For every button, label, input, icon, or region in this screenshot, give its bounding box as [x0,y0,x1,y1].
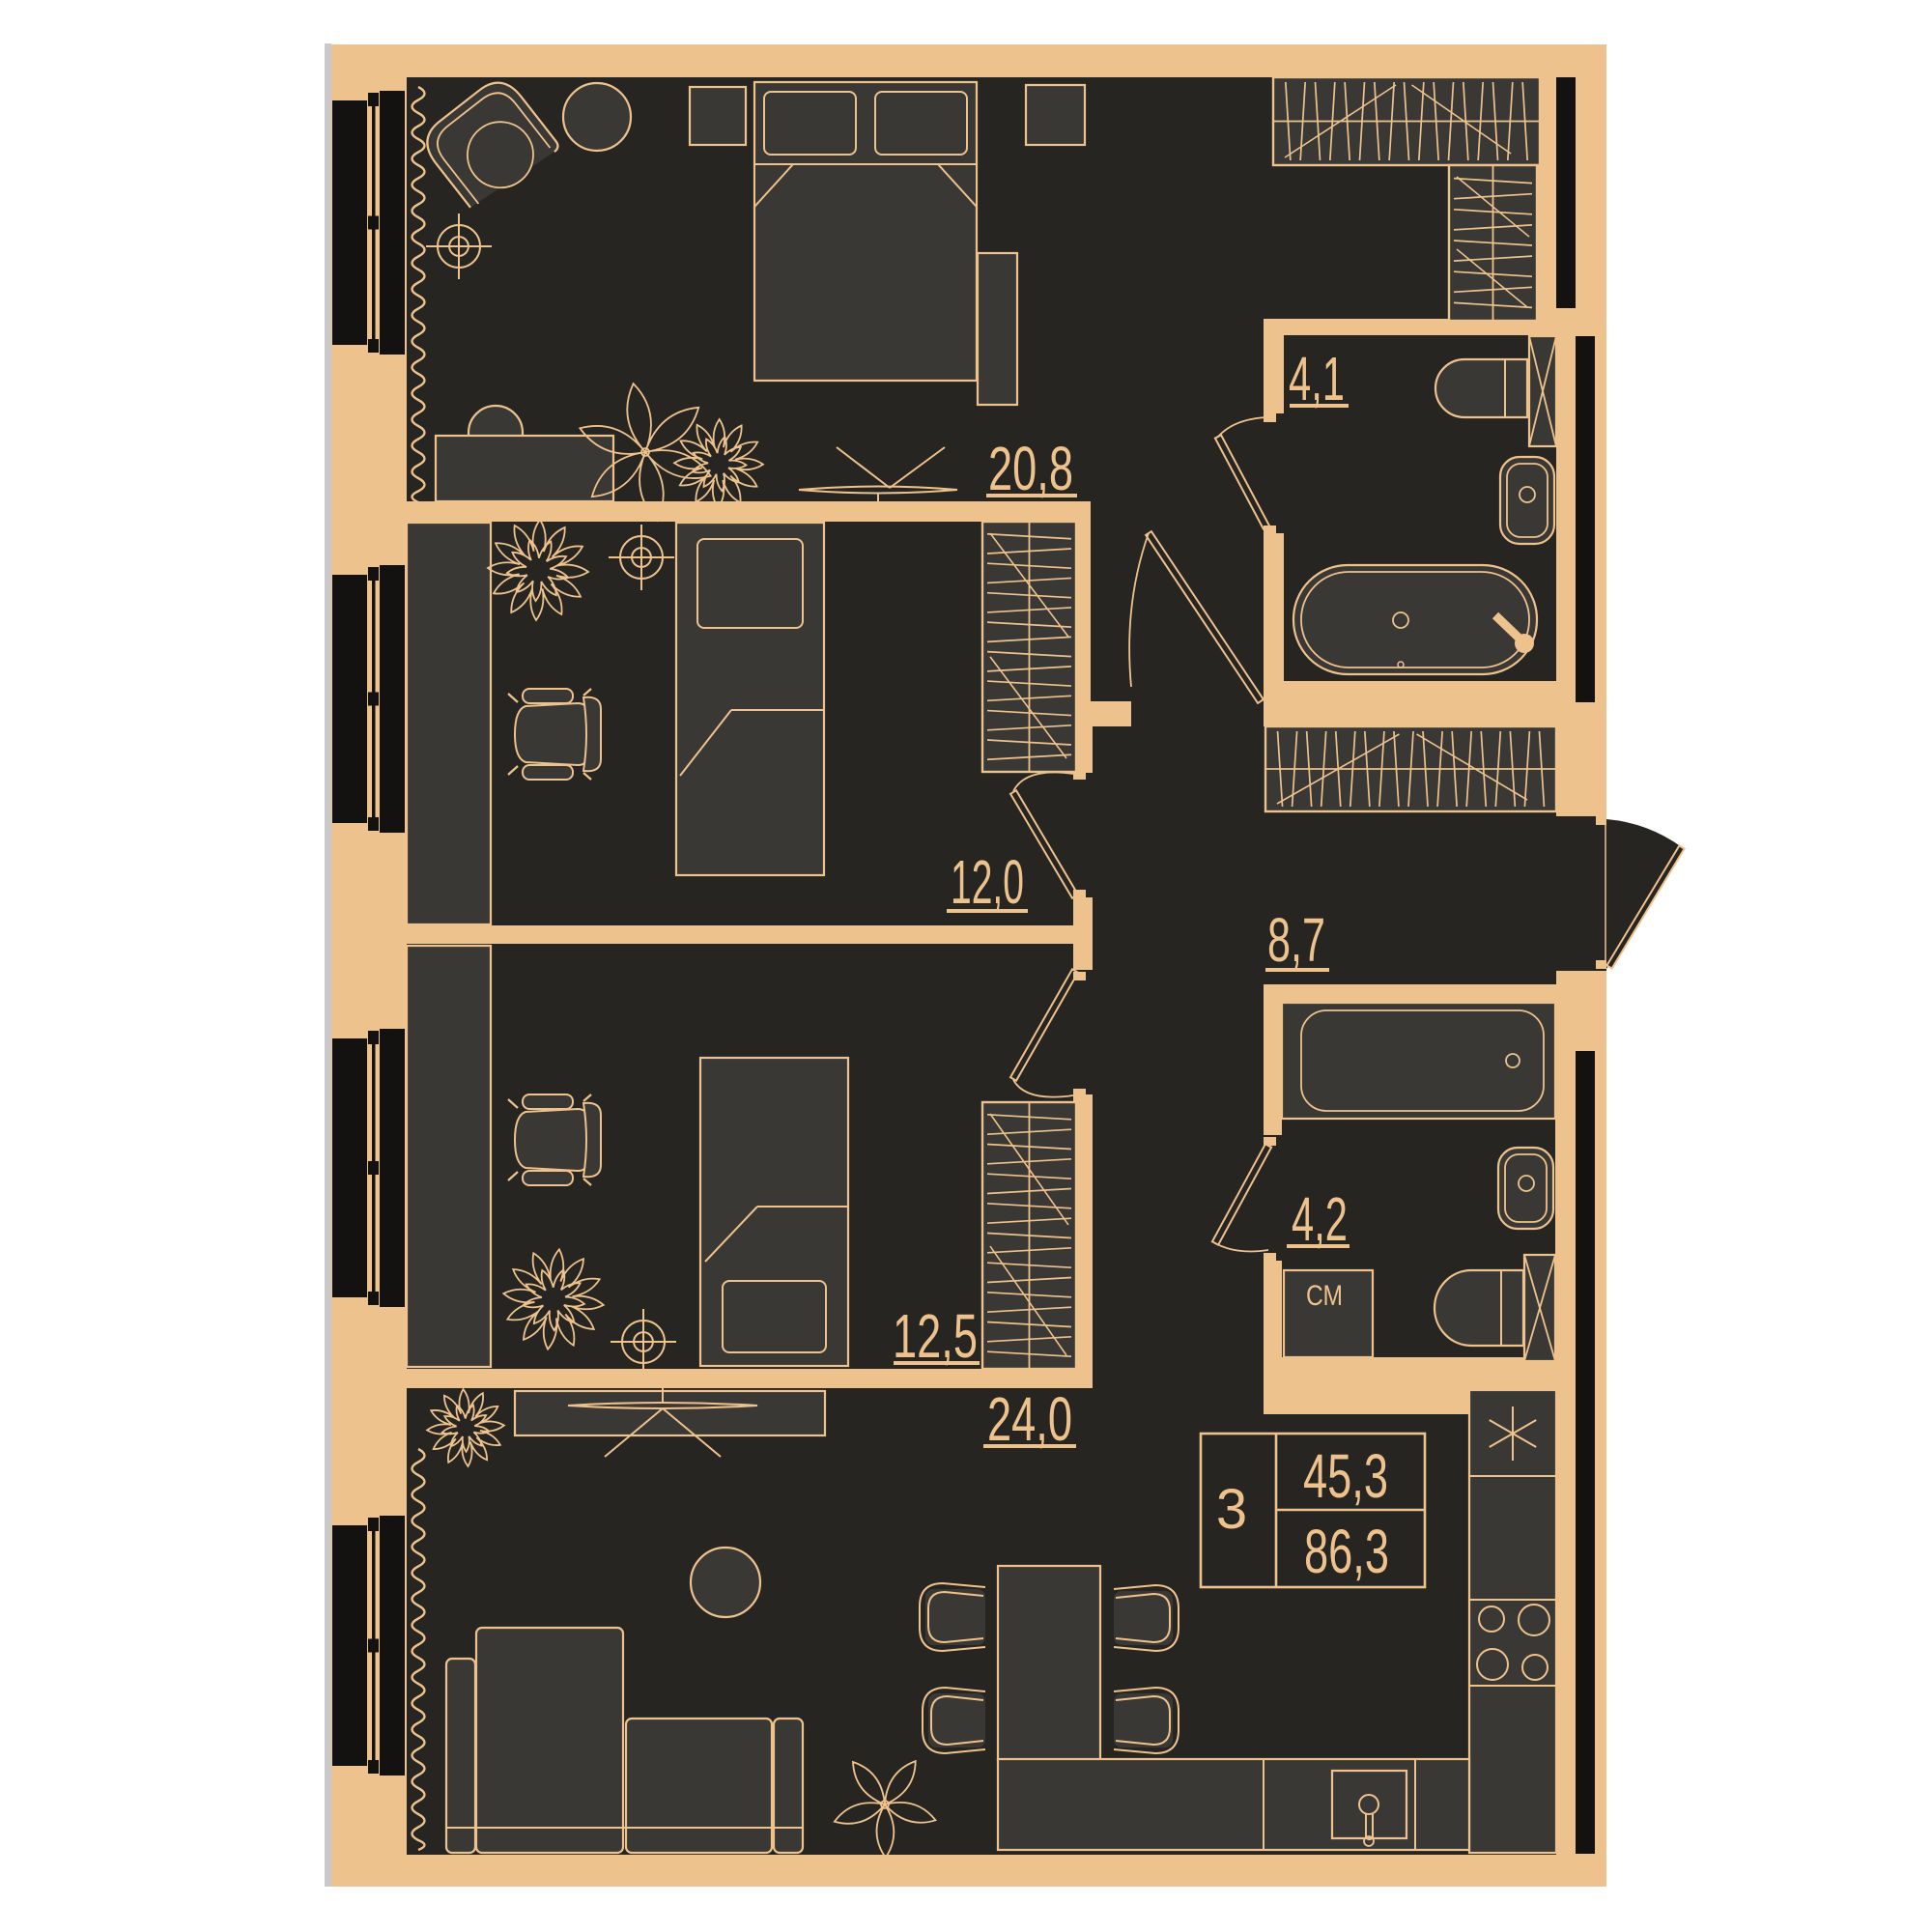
svg-text:86,3: 86,3 [1304,1517,1389,1586]
svg-text:12,0: 12,0 [951,847,1024,917]
svg-text:24,0: 24,0 [987,1384,1072,1454]
svg-text:45,3: 45,3 [1303,1441,1388,1511]
svg-text:12,5: 12,5 [893,1301,978,1371]
svg-text:8,7: 8,7 [1267,905,1325,975]
svg-text:20,8: 20,8 [988,434,1073,503]
svg-text:4,2: 4,2 [1292,1184,1348,1254]
svg-text:4,1: 4,1 [1289,344,1345,413]
svg-text:3: 3 [1216,1478,1247,1541]
svg-text:СМ: СМ [1306,1280,1343,1312]
